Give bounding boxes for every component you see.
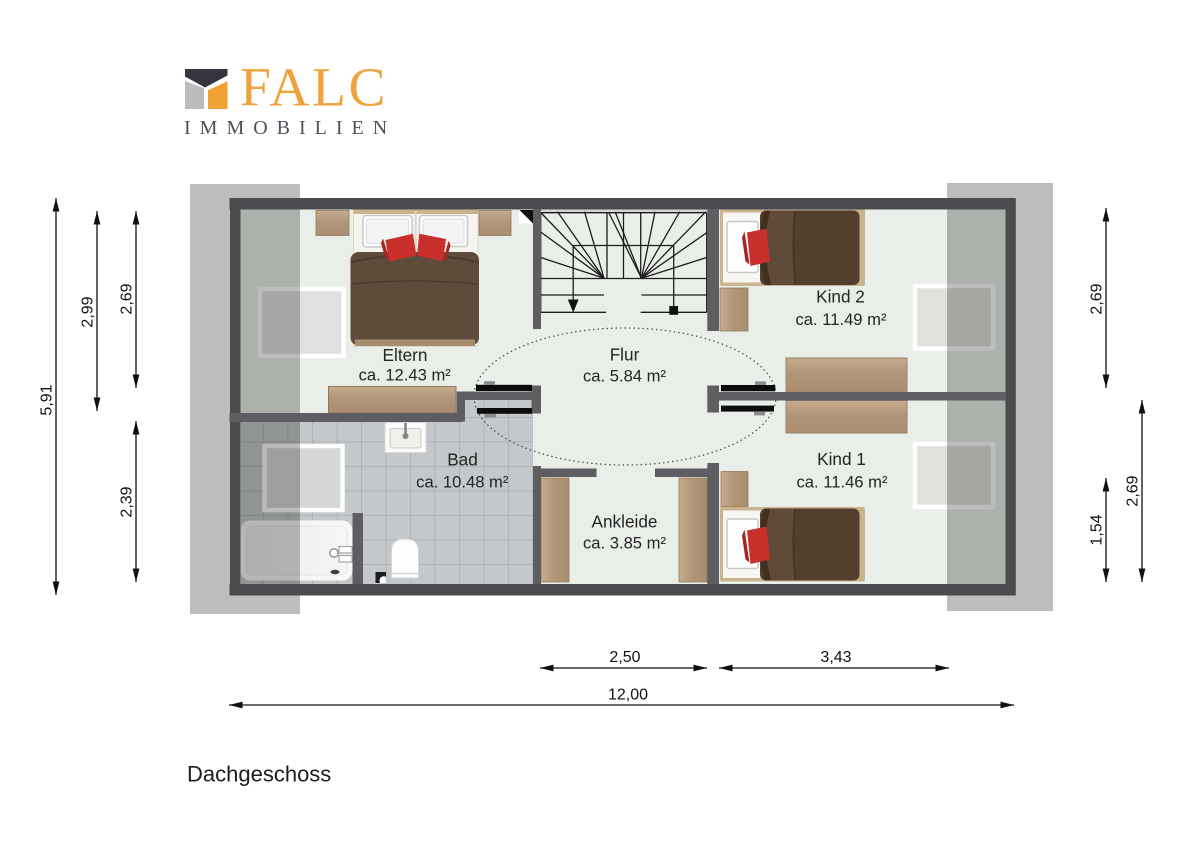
svg-text:FALC: FALC (240, 58, 388, 119)
svg-text:2,69: 2,69 (1089, 283, 1106, 314)
svg-text:ca. 3.85 m²: ca. 3.85 m² (583, 534, 666, 553)
svg-text:ca. 10.48 m²: ca. 10.48 m² (416, 472, 509, 491)
svg-text:2,69: 2,69 (119, 283, 136, 314)
svg-text:ca. 11.49 m²: ca. 11.49 m² (796, 310, 887, 329)
svg-text:Kind 2: Kind 2 (816, 287, 865, 307)
svg-text:ca. 11.46 m²: ca. 11.46 m² (797, 473, 888, 492)
svg-text:Flur: Flur (610, 345, 640, 365)
svg-text:1,54: 1,54 (1089, 514, 1106, 545)
svg-text:5,91: 5,91 (39, 384, 56, 415)
svg-text:Ankleide: Ankleide (592, 512, 658, 532)
svg-text:2,69: 2,69 (1125, 475, 1142, 506)
svg-text:ca. 5.84 m²: ca. 5.84 m² (583, 367, 666, 386)
svg-text:2,99: 2,99 (80, 296, 97, 327)
svg-text:ca. 12.43 m²: ca. 12.43 m² (359, 366, 452, 385)
svg-text:IMMOBILIEN: IMMOBILIEN (184, 117, 396, 139)
svg-text:2,39: 2,39 (119, 486, 136, 517)
svg-text:2,50: 2,50 (609, 649, 640, 666)
svg-text:Dachgeschoss: Dachgeschoss (187, 762, 331, 787)
svg-text:3,43: 3,43 (820, 649, 851, 666)
svg-text:Kind 1: Kind 1 (817, 449, 866, 469)
svg-text:12,00: 12,00 (608, 687, 648, 704)
svg-text:Bad: Bad (447, 450, 478, 470)
svg-text:Eltern: Eltern (383, 345, 428, 365)
